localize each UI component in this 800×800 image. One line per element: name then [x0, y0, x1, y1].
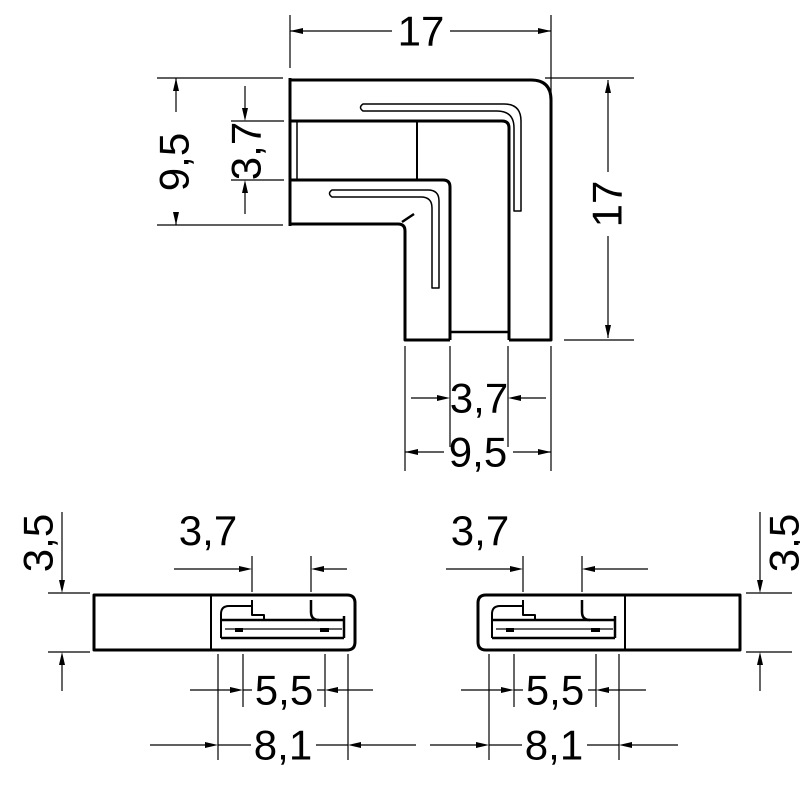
arrow-up-icon — [59, 652, 65, 665]
dim-label-left-insert-length: 8,1 — [254, 722, 312, 769]
dim-label-right-slot-width: 3,7 — [451, 507, 509, 554]
front-view — [290, 78, 551, 340]
arrow-down-icon — [173, 212, 179, 225]
front-slot-outer-boundary — [290, 121, 509, 340]
dim-label-left-slot-width: 3,7 — [179, 507, 237, 554]
arrow-left-icon — [325, 687, 338, 693]
corner-connector-drawing: 17 9,5 3,7 17 3,7 9,5 — [0, 0, 800, 800]
arrow-up-icon — [605, 80, 611, 93]
arrow-right-icon — [230, 687, 243, 693]
front-slot-inner-boundary — [290, 180, 450, 340]
front-dim-slot-height: 3,7 — [223, 86, 284, 214]
dim-lines — [446, 556, 648, 592]
right-bar-outline — [478, 595, 740, 650]
left-window-right-edge — [311, 600, 319, 620]
arrow-left-icon — [405, 449, 418, 455]
dim-label-left-tongue-length: 5,5 — [255, 667, 313, 714]
front-inner-corner-chamfer — [402, 214, 414, 222]
dim-label-front-total-height: 17 — [584, 181, 631, 228]
side-view-right — [478, 595, 740, 650]
technical-drawing-sheet: 17 9,5 3,7 17 3,7 9,5 — [0, 0, 800, 800]
arrow-right-icon — [476, 742, 489, 748]
arrow-down-icon — [59, 580, 65, 593]
dim-lines — [174, 556, 347, 592]
left-recess-ledge — [221, 606, 252, 638]
arrow-left-icon — [348, 742, 361, 748]
dim-label-front-arm-height: 9,5 — [151, 133, 198, 191]
arrow-up-icon — [757, 652, 763, 665]
arrow-down-icon — [242, 108, 248, 121]
dim-label-front-total-width: 17 — [398, 8, 445, 55]
right-recess-ledge — [492, 606, 523, 638]
right-window-left-edge-tab — [523, 600, 535, 620]
dim-label-front-slot-width: 3,7 — [450, 375, 508, 422]
arrow-up-icon — [242, 180, 248, 193]
left-window-left-edge-tab — [252, 600, 264, 620]
arrow-right-icon — [538, 28, 551, 34]
arrow-left-icon — [596, 687, 609, 693]
front-dim-total-width: 17 — [290, 8, 551, 104]
arrow-left-icon — [290, 28, 303, 34]
dim-label-right-insert-length: 8,1 — [525, 722, 583, 769]
arrow-left-icon — [508, 395, 521, 401]
arrow-right-icon — [510, 566, 523, 572]
left-dim-slot-width: 3,7 — [174, 507, 347, 592]
right-window-right-edge — [582, 600, 590, 620]
dim-label-front-slot-height: 3,7 — [223, 122, 270, 180]
front-outline-inner-corner — [290, 224, 450, 340]
arrow-right-icon — [239, 566, 252, 572]
right-dim-thickness: 3,5 — [746, 512, 800, 691]
dim-label-left-thickness: 3,5 — [15, 514, 62, 572]
side-view-left — [94, 595, 355, 650]
arrow-right-icon — [437, 395, 450, 401]
arrow-down-icon — [605, 325, 611, 338]
dim-label-right-tongue-length: 5,5 — [526, 667, 584, 714]
arrow-left-icon — [582, 566, 595, 572]
arrow-right-icon — [538, 449, 551, 455]
arrow-left-icon — [619, 742, 632, 748]
left-bar-outline — [94, 595, 355, 650]
front-clip-tongue-inner — [330, 190, 440, 288]
arrow-right-icon — [205, 742, 218, 748]
front-dim-total-height: 17 — [545, 78, 634, 340]
arrow-up-icon — [173, 78, 179, 91]
dim-label-front-arm-width: 9,5 — [449, 429, 507, 476]
arrow-right-icon — [501, 687, 514, 693]
left-dim-thickness: 3,5 — [15, 512, 90, 691]
right-dim-slot-width: 3,7 — [446, 507, 648, 592]
dim-label-right-thickness: 3,5 — [761, 514, 800, 572]
arrow-left-icon — [311, 566, 324, 572]
arrow-down-icon — [757, 580, 763, 593]
